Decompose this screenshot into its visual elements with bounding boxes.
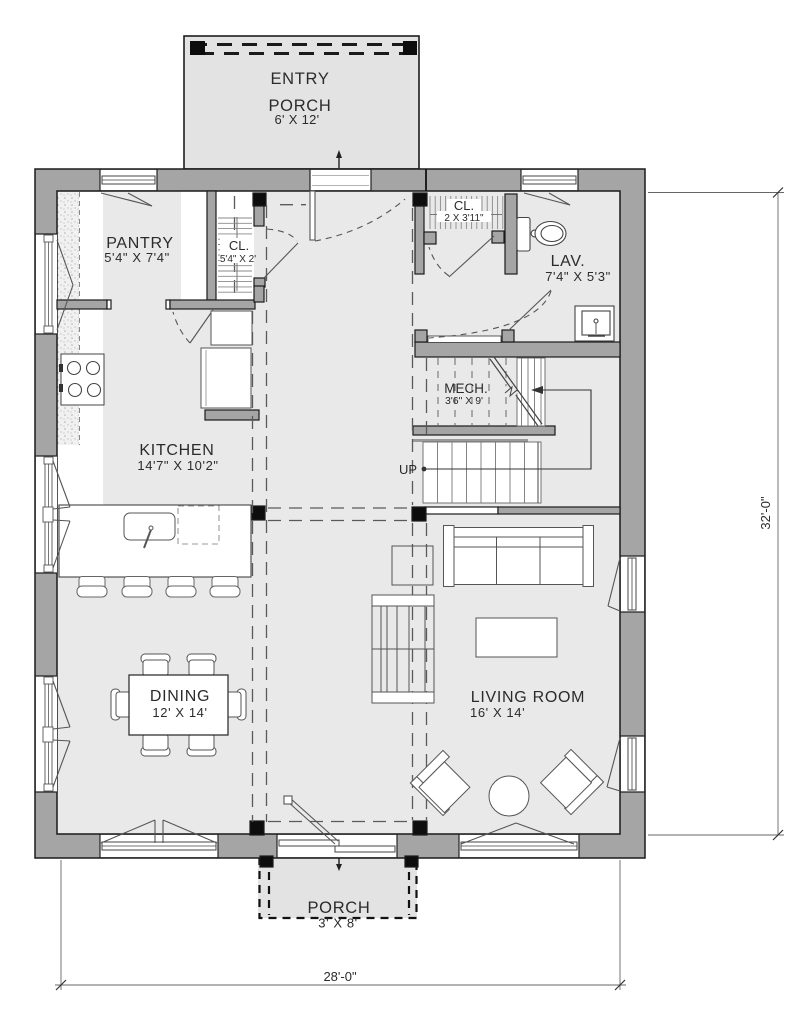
svg-text:16' X 14': 16' X 14'	[470, 705, 525, 720]
svg-text:28'-0": 28'-0"	[323, 969, 357, 984]
svg-text:7'4" X 5'3": 7'4" X 5'3"	[545, 269, 611, 284]
svg-text:6' X 12': 6' X 12'	[275, 112, 320, 127]
svg-text:32'-0": 32'-0"	[758, 496, 773, 530]
svg-text:5'4" X 7'4": 5'4" X 7'4"	[104, 250, 170, 265]
svg-text:CL.: CL.	[229, 238, 249, 253]
svg-text:KITCHEN: KITCHEN	[139, 442, 214, 459]
svg-text:PORCH: PORCH	[307, 899, 370, 917]
svg-text:MECH.: MECH.	[444, 381, 488, 396]
svg-text:ENTRY: ENTRY	[270, 70, 329, 88]
svg-text:LIVING ROOM: LIVING ROOM	[471, 689, 585, 706]
svg-text:3'6" X 9': 3'6" X 9'	[445, 395, 483, 407]
svg-text:LAV.: LAV.	[551, 253, 586, 270]
svg-text:14'7" X 10'2": 14'7" X 10'2"	[137, 458, 218, 473]
svg-text:2 X 3'11": 2 X 3'11"	[444, 213, 484, 224]
svg-text:CL.: CL.	[454, 198, 474, 213]
svg-text:DINING: DINING	[150, 688, 210, 705]
svg-text:12' X 14': 12' X 14'	[152, 705, 207, 720]
svg-text:5'4" X 2': 5'4" X 2'	[220, 254, 256, 265]
svg-text:UP: UP	[399, 462, 417, 477]
svg-text:3' X 8': 3' X 8'	[318, 916, 358, 931]
